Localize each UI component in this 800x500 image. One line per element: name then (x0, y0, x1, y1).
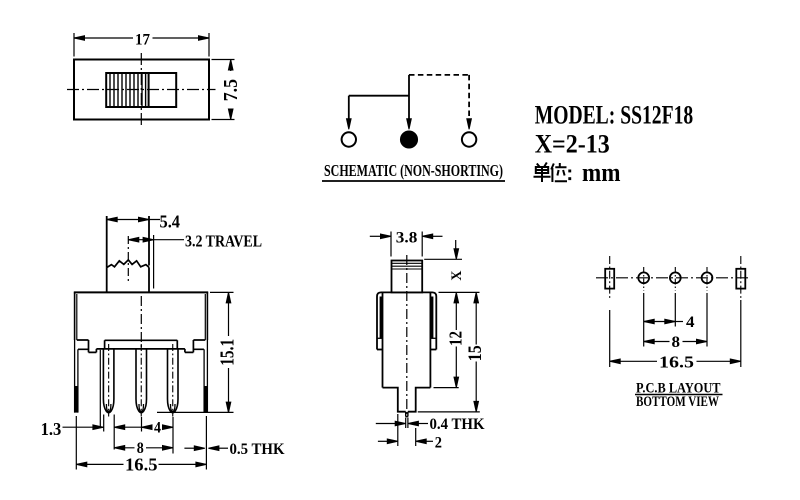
svg-text:0.5 THK: 0.5 THK (230, 441, 286, 458)
svg-text:15: 15 (465, 345, 486, 361)
svg-text:0.4 THK: 0.4 THK (430, 416, 486, 433)
svg-text:8: 8 (672, 334, 681, 351)
svg-text:3.2 TRAVEL: 3.2 TRAVEL (185, 232, 262, 251)
svg-text:4: 4 (154, 419, 161, 436)
svg-text:mm: mm (582, 158, 621, 187)
svg-text:17: 17 (135, 32, 150, 49)
svg-text:7.5: 7.5 (220, 79, 242, 101)
svg-text:3.8: 3.8 (396, 230, 418, 247)
svg-text:16.5: 16.5 (659, 353, 694, 372)
svg-text:12: 12 (445, 331, 465, 346)
svg-text:SCHEMATIC (NON-SHORTING): SCHEMATIC (NON-SHORTING) (324, 161, 503, 180)
svg-text:X: X (449, 270, 465, 280)
svg-text:X=2-13: X=2-13 (535, 130, 610, 159)
svg-text:5.4: 5.4 (160, 212, 181, 232)
svg-text:4: 4 (686, 314, 695, 331)
svg-text:MODEL: SS12F18: MODEL: SS12F18 (535, 101, 694, 130)
svg-text:16.5: 16.5 (125, 454, 158, 474)
svg-text:BOTTOM VIEW: BOTTOM VIEW (636, 394, 719, 410)
svg-text:1.3: 1.3 (41, 419, 62, 439)
svg-text:15.1: 15.1 (216, 339, 238, 366)
svg-text:2: 2 (435, 435, 442, 452)
